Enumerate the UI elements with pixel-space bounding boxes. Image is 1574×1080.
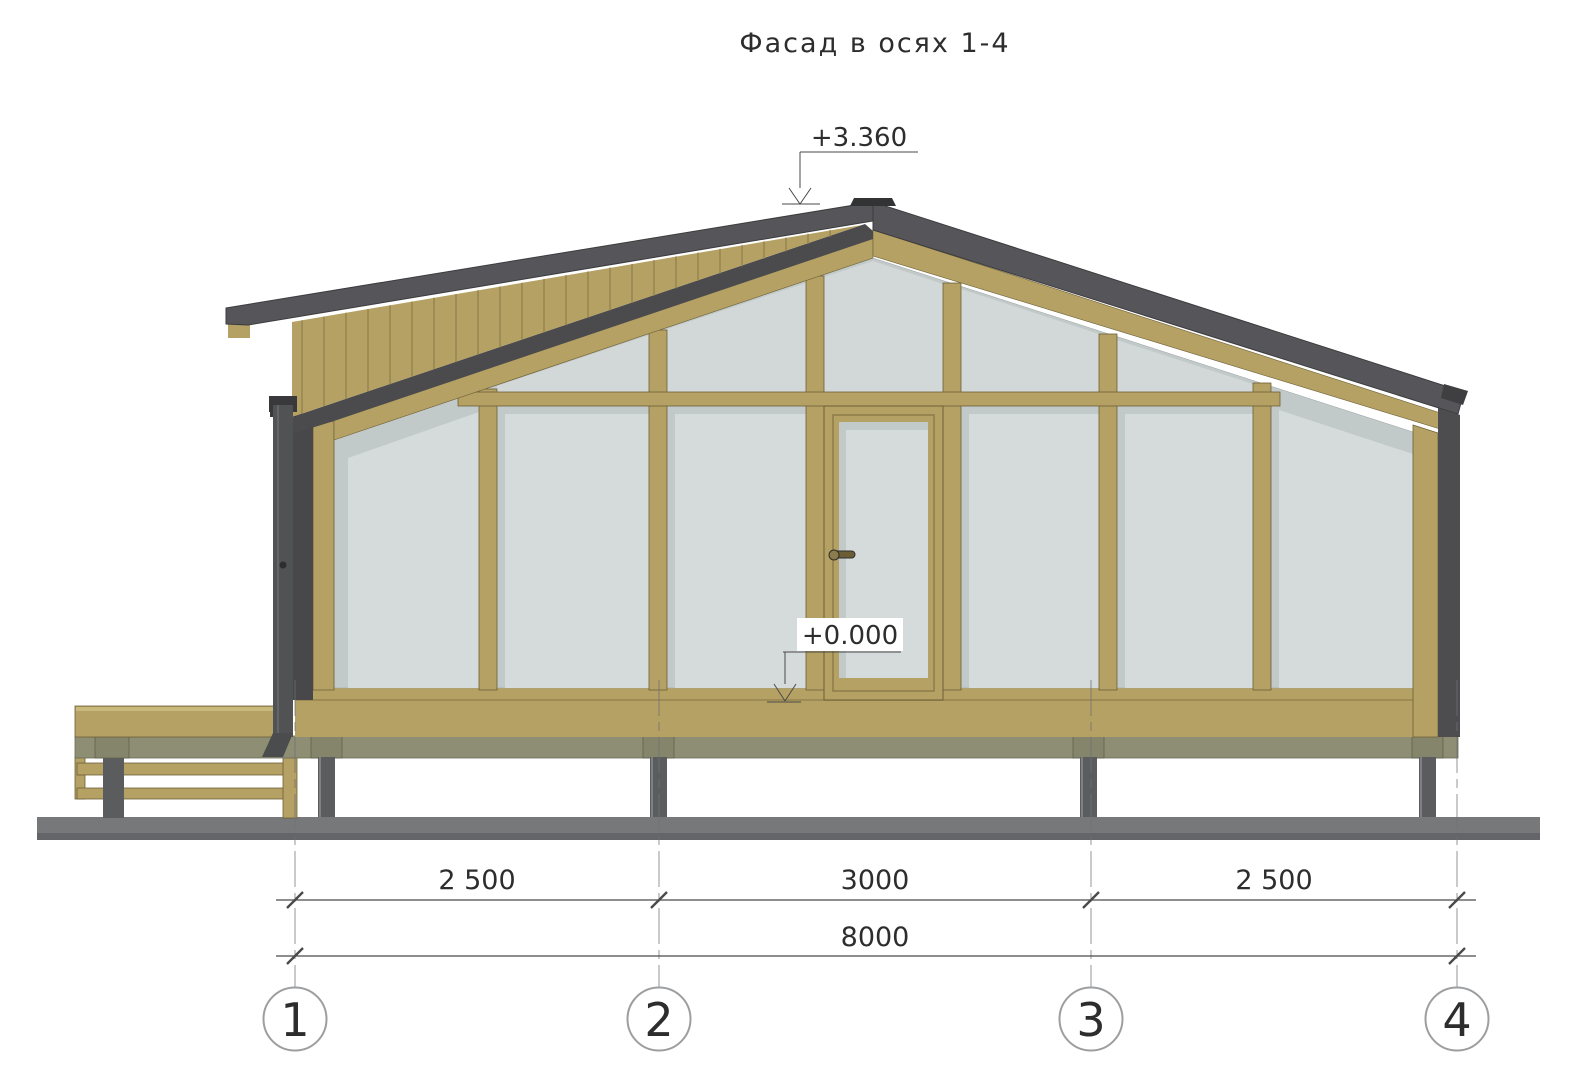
facade-drawing: +3.360 +0.000 2 500 3000 2 500 8000 1 [0, 0, 1574, 1080]
deck [75, 706, 275, 737]
downspout-pipe [273, 405, 293, 737]
axis-number: 4 [1442, 993, 1471, 1047]
ridge-cap [850, 198, 896, 206]
axis-number: 3 [1076, 993, 1105, 1047]
deck-post-left [103, 757, 124, 818]
drawing-title: Фасад в осях 1-4 [739, 28, 1010, 59]
elevation-label: +0.000 [802, 621, 898, 651]
downspout-bracket [280, 562, 287, 569]
piles [318, 757, 1436, 817]
axis-number: 1 [280, 993, 309, 1047]
right-jamb [1413, 425, 1438, 737]
axis-bubble-3: 3 [1060, 988, 1123, 1051]
axis-bubble-1: 1 [264, 988, 327, 1051]
axis-bubbles: 1 2 3 4 [264, 988, 1489, 1051]
transom-bar [458, 392, 1280, 406]
dimension-total-label: 8000 [841, 922, 910, 953]
left-jamb [313, 415, 334, 690]
left-corner-board [293, 410, 313, 700]
elevation-mark-ridge: +3.360 [782, 123, 918, 204]
downspout [262, 396, 297, 757]
dimension-lines: 2 500 3000 2 500 8000 [276, 865, 1476, 964]
door-handle-icon [829, 550, 855, 560]
dimension-label: 2 500 [1235, 865, 1312, 896]
axis-bubble-4: 4 [1426, 988, 1489, 1051]
axis-number: 2 [644, 993, 673, 1047]
ground [37, 817, 1540, 840]
mullion [1099, 334, 1117, 690]
mullion [943, 283, 961, 690]
elevation-label: +3.360 [811, 123, 907, 153]
ground-edge [37, 833, 1540, 840]
mullion [1253, 383, 1271, 690]
dimension-label: 3000 [841, 865, 910, 896]
entry-door [824, 406, 943, 700]
mullion [479, 389, 497, 690]
axis-bubble-2: 2 [628, 988, 691, 1051]
dimension-label: 2 500 [438, 865, 515, 896]
mullion [649, 330, 667, 690]
